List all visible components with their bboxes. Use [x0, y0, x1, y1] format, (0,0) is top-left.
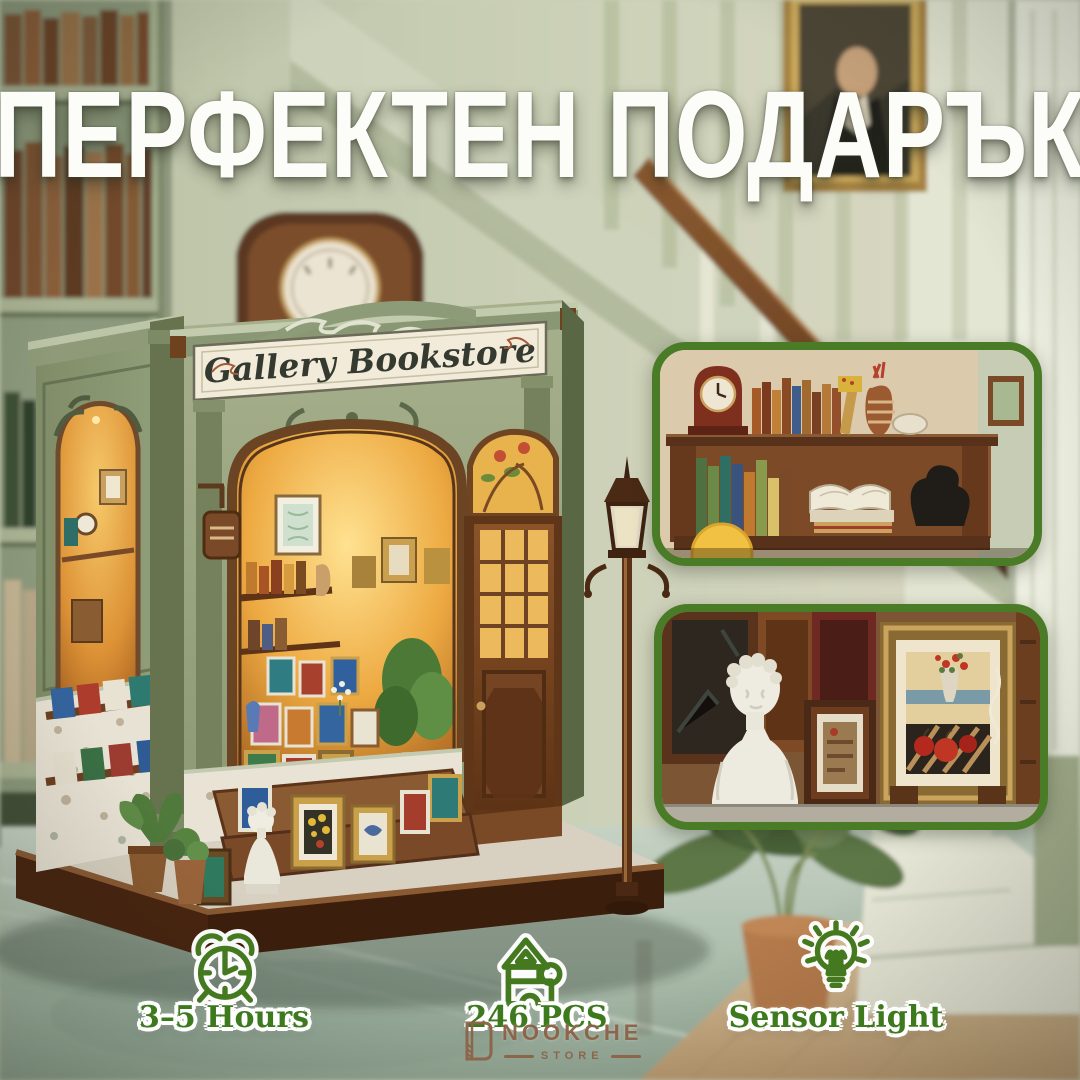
bookshelf-detail-photo [660, 350, 1034, 558]
mantel-clock [688, 366, 748, 435]
open-book [810, 485, 894, 533]
feature-light-label: Sensor Light [696, 1000, 976, 1035]
brand-name: NOOKCHE [502, 1020, 642, 1046]
brand-logo: NOOKCHE STORE [462, 1020, 642, 1062]
store-divider-right [611, 1055, 641, 1058]
brand-tagline: STORE [541, 1050, 604, 1062]
striped-vase [865, 386, 892, 434]
book-logo-icon [462, 1020, 494, 1062]
alarm-clock-icon [186, 928, 264, 1006]
detail-inset-bookshelf [652, 342, 1042, 566]
store-divider-left [504, 1055, 534, 1058]
small-frame [804, 700, 876, 806]
promo-image: Gallery Bookstore [0, 0, 1080, 1080]
feature-hours-label: 3–5 Hours [84, 1000, 364, 1035]
detail-inset-gallery [654, 604, 1048, 830]
gallery-detail-photo [662, 612, 1040, 822]
sensor-bulb-icon [797, 920, 875, 998]
still-life-painting [880, 622, 1016, 804]
headline: ПЕРФЕКТЕН ПОДАРЪК [0, 74, 1080, 197]
